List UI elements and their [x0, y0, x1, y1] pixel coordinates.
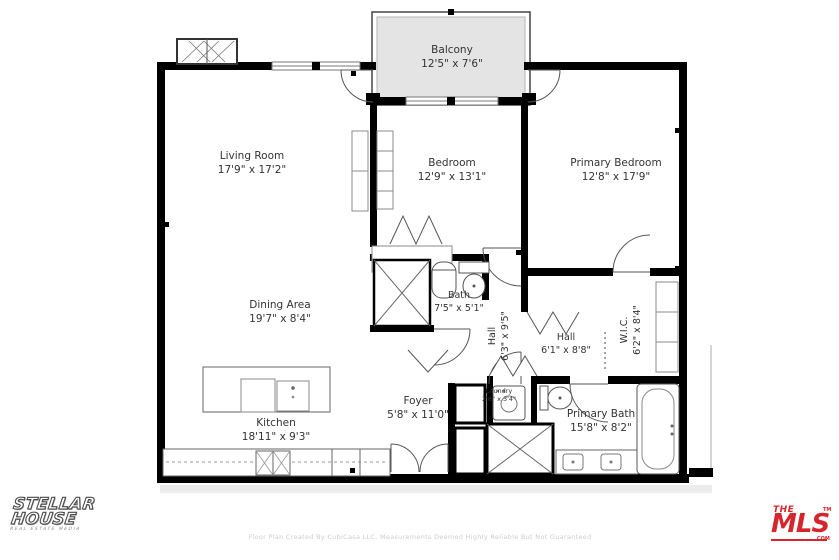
room-label-primary-bath: Primary Bath 15'8" x 8'2" [567, 407, 635, 435]
room-label-kitchen: Kitchen 18'11" x 9'3" [242, 416, 310, 444]
room-label-bath: Bath 7'5" x 5'1" [434, 290, 484, 316]
room-label-hall: Hall 6'1" x 8'8" [541, 332, 591, 358]
room-label-hall-vertical: Hall 6'3" x 9'5" [487, 311, 513, 361]
room-label-foyer: Foyer 5'8" x 11'0" [387, 394, 449, 422]
room-label-primary-bedroom: Primary Bedroom 12'8" x 17'9" [570, 156, 661, 184]
room-label-balcony: Balcony 12'5" x 7'6" [421, 43, 483, 71]
fireplace-icon [177, 39, 237, 64]
room-label-laundry: Laundry 2'8" x 3'4" [482, 388, 516, 404]
floor-plan-page: Balcony 12'5" x 7'6" Living Room 17'9" x… [0, 0, 839, 560]
stellar-house-logo: STELLAR HOUSE REAL ESTATE MEDIA [10, 497, 125, 532]
room-label-bedroom: Bedroom 12'9" x 13'1" [418, 156, 486, 184]
vanity-icon [556, 450, 638, 474]
bathtub-icon [637, 384, 679, 474]
shower-icon [374, 260, 430, 326]
primary-shower-icon [487, 424, 553, 474]
kitchen-island [203, 367, 330, 412]
kitchen-counter [163, 449, 390, 476]
disclaimer-text: Floor Plan Created By CubiCasa LLC. Meas… [200, 533, 640, 541]
floor-plan-drawing [0, 0, 839, 560]
foyer-closets [455, 385, 485, 474]
room-label-wic: W.I.C. 6'2" x 8'4" [619, 305, 645, 355]
room-label-living-room: Living Room 17'9" x 17'2" [218, 149, 286, 177]
room-label-dining-area: Dining Area 19'7" x 8'4" [249, 298, 311, 326]
the-mls-logo: THE MLS TM .COM [771, 505, 833, 550]
